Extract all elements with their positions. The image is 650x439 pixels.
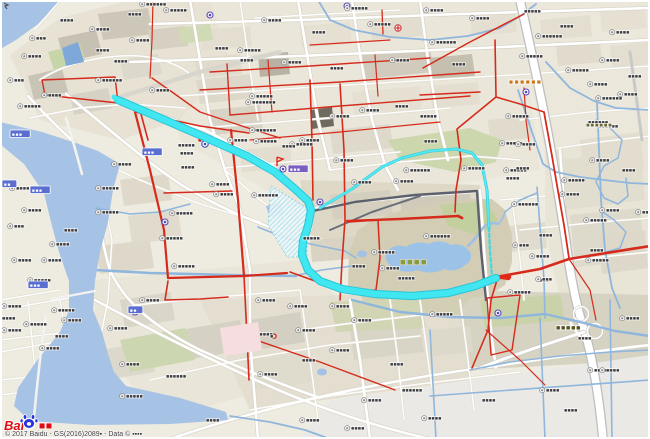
svg-text:■■■■: ■■■■	[368, 398, 382, 404]
svg-text:■■■: ■■■	[14, 78, 24, 84]
svg-text:■■■■■■: ■■■■■■	[410, 168, 430, 174]
svg-text:■■■■: ■■■■	[395, 104, 409, 110]
svg-text:■■■■: ■■■■	[68, 318, 82, 324]
svg-text:■■■■: ■■■■	[358, 180, 372, 186]
svg-text:■■■: ■■■	[14, 224, 24, 230]
svg-text:■■■■: ■■■■	[626, 316, 640, 322]
svg-text:■■■■■■: ■■■■■■	[509, 79, 543, 86]
svg-text:■■■■■: ■■■■■	[303, 236, 320, 242]
svg-text:■■■■: ■■■■	[606, 58, 620, 64]
svg-text:■■■■: ■■■■	[156, 88, 170, 94]
svg-text:■■■■: ■■■■	[264, 372, 278, 378]
svg-text:■■■■: ■■■■	[262, 298, 276, 304]
svg-text:■■■■: ■■■■	[302, 328, 316, 334]
svg-text:■■■: ■■■	[12, 132, 23, 137]
svg-text:■■■■: ■■■■	[48, 93, 62, 99]
svg-text:■■■■■: ■■■■■	[58, 308, 75, 314]
svg-text:■■■■: ■■■■	[114, 59, 128, 65]
svg-text:■■■■: ■■■■	[302, 358, 316, 364]
svg-text:■■■■■: ■■■■■	[512, 114, 529, 120]
svg-text:■■■■: ■■■■	[312, 30, 326, 36]
svg-text:■■■■: ■■■■	[8, 328, 22, 334]
svg-text:■■■■: ■■■■	[126, 362, 140, 368]
svg-text:■■■■: ■■■■	[136, 38, 150, 44]
svg-text:■■■■: ■■■■	[522, 142, 536, 148]
svg-text:■■■■■: ■■■■■	[256, 94, 273, 100]
svg-text:■■■: ■■■	[32, 188, 43, 193]
svg-text:■■■■■: ■■■■■	[436, 312, 453, 318]
svg-text:■■■■: ■■■■	[55, 334, 69, 340]
svg-text:■■■■■: ■■■■■	[524, 9, 541, 15]
svg-text:■■■■: ■■■■	[628, 74, 642, 80]
svg-text:■■■■: ■■■■	[624, 92, 638, 98]
svg-text:■■■■: ■■■■	[128, 12, 142, 18]
svg-text:■■■■: ■■■■	[622, 168, 636, 174]
svg-text:■■■■: ■■■■	[386, 266, 400, 272]
svg-text:■■■■■: ■■■■■	[176, 211, 193, 217]
svg-text:■■■■■: ■■■■■	[378, 250, 395, 256]
svg-text:■■■■: ■■■■	[476, 16, 490, 22]
svg-text:■■■■: ■■■■	[220, 192, 234, 198]
svg-text:■■■■■: ■■■■■	[24, 104, 41, 110]
svg-text:■■■■: ■■■■	[96, 48, 110, 54]
svg-text:© 2017 Baidu - GS(2016)2089▪ -: © 2017 Baidu - GS(2016)2089▪ - Data © ▪▪…	[5, 430, 143, 438]
svg-text:■■■: ■■■	[290, 167, 301, 172]
svg-text:■■■■: ■■■■	[590, 248, 604, 254]
svg-text:■■: ■■	[130, 308, 137, 313]
svg-text:■■■■: ■■■■	[424, 139, 438, 145]
svg-text:■■■■: ■■■■	[336, 348, 350, 354]
svg-text:■■■■: ■■■■	[56, 242, 70, 248]
svg-text:■■■■■■: ■■■■■■	[436, 40, 456, 46]
svg-text:■■■■: ■■■■	[352, 264, 366, 270]
svg-text:■■■: ■■■	[36, 36, 46, 42]
svg-text:■■■■: ■■■■	[428, 416, 442, 422]
svg-text:■■■■: ■■■■	[452, 62, 466, 68]
svg-text:■■■■■: ■■■■■	[102, 186, 119, 192]
svg-text:■■■■■■: ■■■■■■	[542, 34, 562, 40]
svg-text:■■■■: ■■■■	[216, 182, 230, 188]
svg-text:■■■■: ■■■■	[181, 165, 195, 171]
svg-text:■■■■■■: ■■■■■■	[258, 193, 278, 199]
svg-text:■■■■: ■■■■	[400, 257, 428, 268]
svg-text:■■■■: ■■■■	[566, 192, 580, 198]
svg-text:■: ■	[270, 334, 273, 340]
svg-text:■■■■: ■■■■	[206, 418, 220, 424]
svg-text:■■■■: ■■■■	[294, 304, 308, 310]
svg-text:■■: ■■	[4, 182, 11, 187]
svg-text:■■■■■: ■■■■■	[178, 264, 195, 270]
svg-text:■■■■: ■■■■	[400, 179, 414, 185]
svg-text:■■■■■■: ■■■■■■	[430, 234, 450, 240]
svg-text:■■■■: ■■■■	[516, 166, 530, 172]
svg-text:■■■■■■: ■■■■■■	[166, 374, 186, 380]
svg-text:■■■■: ■■■■	[306, 418, 320, 424]
svg-text:■■■■■■: ■■■■■■	[146, 2, 166, 8]
svg-text:■■■■■: ■■■■■	[126, 394, 143, 400]
svg-text:■■■■: ■■■■	[506, 176, 520, 182]
svg-text:■■■■■: ■■■■■	[351, 6, 368, 12]
svg-text:■■■■: ■■■■	[60, 18, 74, 24]
svg-text:■■■■: ■■■■	[336, 114, 350, 120]
svg-text:■■■■: ■■■■	[366, 108, 380, 114]
svg-text:■■■■■: ■■■■■	[556, 325, 581, 332]
svg-text:■■■■: ■■■■	[64, 228, 78, 234]
svg-text:■■■■■: ■■■■■	[260, 139, 277, 145]
svg-text:■■■■: ■■■■	[539, 233, 553, 239]
svg-text:■■■■: ■■■■	[18, 258, 32, 264]
svg-text:■■■■: ■■■■	[28, 208, 42, 214]
svg-text:■■■■: ■■■■	[240, 58, 254, 64]
svg-text:■■■■■: ■■■■■	[102, 210, 119, 216]
svg-text:■■■■■: ■■■■■	[398, 276, 415, 282]
svg-text:■■■■■: ■■■■■	[592, 258, 609, 264]
svg-text:■■■■: ■■■■	[306, 138, 320, 144]
svg-text:■■■■: ■■■■	[118, 162, 132, 168]
svg-text:■■■■: ■■■■	[96, 27, 110, 33]
svg-text:■■■■: ■■■■	[282, 144, 296, 150]
svg-text:■■■■■■■: ■■■■■■■	[252, 100, 276, 106]
svg-text:■■■■: ■■■■	[46, 346, 60, 352]
svg-text:■■■■: ■■■■	[28, 54, 42, 60]
svg-text:■■■■: ■■■■	[114, 326, 128, 332]
svg-text:■■■■: ■■■■	[180, 151, 194, 157]
svg-text:■■■■: ■■■■	[564, 408, 578, 414]
svg-text:■■■■■: ■■■■■	[468, 166, 485, 172]
svg-text:■■■■: ■■■■	[578, 336, 592, 342]
svg-text:■■■■: ■■■■	[616, 30, 630, 36]
svg-text:■■■■■: ■■■■■	[572, 68, 589, 74]
svg-text:■■■■■: ■■■■■	[590, 218, 607, 224]
svg-text:■■■■: ■■■■	[146, 298, 160, 304]
svg-text:■■■■: ■■■■	[546, 388, 560, 394]
svg-text:■■■■: ■■■■	[606, 208, 620, 214]
svg-text:■■■■: ■■■■	[215, 46, 229, 52]
svg-text:■■■■■■: ■■■■■■	[102, 78, 122, 84]
svg-text:■■■: ■■■	[144, 150, 155, 155]
svg-text:■■■■■: ■■■■■	[420, 114, 437, 120]
svg-text:■■■■: ■■■■	[234, 138, 248, 144]
svg-text:■■■: ■■■	[30, 283, 41, 288]
svg-text:■■■: ■■■	[519, 243, 529, 249]
svg-text:■■■■: ■■■■	[536, 254, 550, 260]
svg-text:■■■■: ■■■■	[8, 304, 22, 310]
svg-text:■■■■■: ■■■■■	[178, 143, 195, 149]
svg-text:■■■■: ■■■■	[351, 426, 365, 432]
svg-text:■■■■: ■■■■	[482, 398, 496, 404]
svg-text:■■■■■: ■■■■■	[526, 54, 543, 60]
svg-text:■■■■■■: ■■■■■■	[586, 123, 613, 129]
svg-text:■■■■: ■■■■	[396, 58, 410, 64]
svg-text:■■■■■: ■■■■■	[170, 8, 187, 14]
svg-text:■■■■: ■■■■	[358, 318, 372, 324]
svg-text:■■■■: ■■■■	[330, 66, 344, 72]
svg-text:■■■■: ■■■■	[596, 158, 610, 164]
svg-text:■■■■: ■■■■	[268, 18, 282, 24]
svg-text:■■■■: ■■■■	[336, 304, 350, 310]
svg-text:■■■■■: ■■■■■	[244, 48, 261, 54]
svg-text:■■■■: ■■■■	[340, 158, 354, 164]
svg-text:■■■■: ■■■■	[560, 24, 574, 30]
svg-text:■■■■: ■■■■	[430, 8, 444, 14]
svg-text:■■■■: ■■■■	[390, 362, 404, 368]
svg-text:■■■■■■: ■■■■■■	[518, 202, 538, 208]
svg-text:■■■■: ■■■■	[606, 368, 620, 374]
svg-text:■■■■■■: ■■■■■■	[256, 128, 276, 134]
svg-text:■■■■: ■■■■	[2, 316, 16, 322]
svg-text:■■■: ■■■	[542, 277, 552, 283]
svg-text:■■■■■: ■■■■■	[514, 290, 531, 296]
svg-text:■■■■■: ■■■■■	[568, 178, 585, 184]
svg-text:■■■■■: ■■■■■	[166, 236, 183, 242]
svg-text:■■■■: ■■■■	[288, 60, 302, 66]
svg-text:■■■■■■: ■■■■■■	[402, 388, 422, 394]
svg-text:■■■■: ■■■■	[594, 82, 608, 88]
svg-text:■■■■■: ■■■■■	[374, 22, 391, 28]
svg-text:■■■■■: ■■■■■	[30, 322, 47, 328]
svg-text:■■■■: ■■■■	[48, 258, 62, 264]
svg-text:■■■■: ■■■■	[16, 186, 30, 192]
